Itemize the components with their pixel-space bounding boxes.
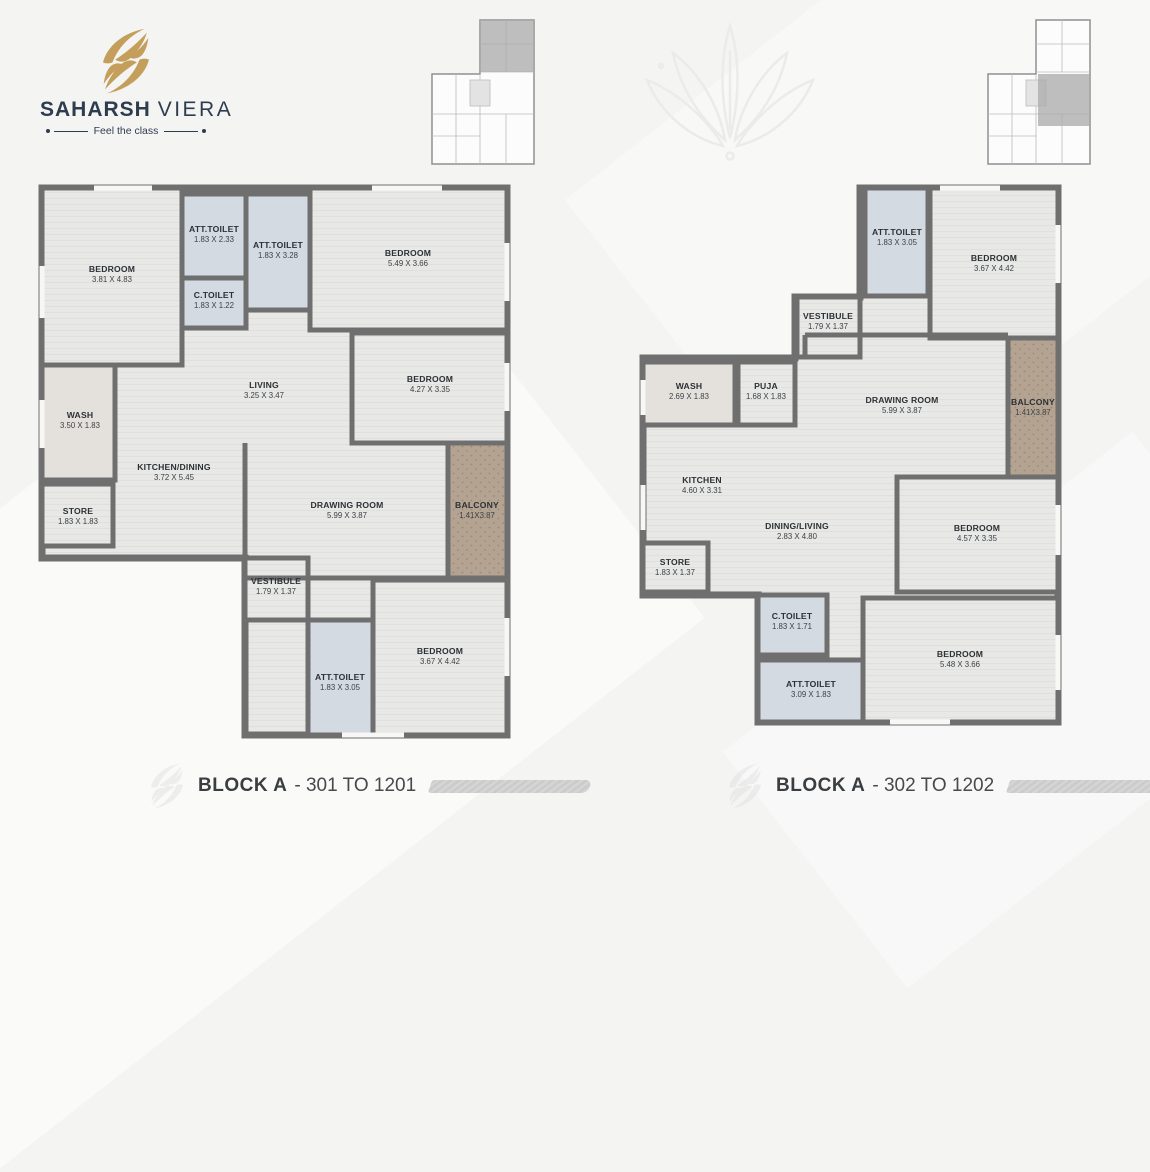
title-underline-bar (428, 780, 592, 793)
plan-title-left: BLOCK A - 301 TO 1201 (148, 768, 590, 804)
swirl-watermark-icon (148, 763, 186, 809)
plan-title-right: BLOCK A - 302 TO 1202 (726, 768, 1150, 804)
keyplan-highlight-unit (1038, 74, 1090, 126)
tagline-dot-icon (46, 129, 50, 133)
tagline-dot-icon (202, 129, 206, 133)
brand-name-bold: SAHARSH (40, 98, 151, 121)
unit-range: - 301 TO 1201 (294, 775, 416, 797)
keyplan-right (980, 16, 1098, 168)
lotus-watermark-icon (645, 8, 815, 168)
tagline-line (164, 131, 198, 132)
swirl-watermark-icon (726, 763, 764, 809)
brand-logo: SAHARSH VIERA Feel the class (40, 28, 212, 137)
room-bedroom (930, 188, 1058, 338)
floorplan-unit-302: ATT.TOILET1.83 X 3.05 BEDROOM3.67 X 4.42… (636, 181, 1064, 734)
tagline-text: Feel the class (92, 125, 161, 137)
tagline-line (54, 131, 88, 132)
keyplan-left (424, 16, 542, 168)
brand-tagline: Feel the class (40, 125, 212, 137)
brand-swirl-icon (99, 28, 153, 94)
block-name: BLOCK A (776, 775, 865, 797)
title-underline-bar (1006, 780, 1150, 793)
unit-range: - 302 TO 1202 (872, 775, 994, 797)
brand-name: SAHARSH VIERA (40, 98, 212, 122)
keyplan-highlight-unit (480, 20, 534, 72)
brand-name-light: VIERA (158, 98, 234, 121)
floorplan-unit-301: BEDROOM3.81 X 4.83 ATT.TOILET1.83 X 2.33… (38, 184, 512, 745)
block-name: BLOCK A (198, 775, 287, 797)
